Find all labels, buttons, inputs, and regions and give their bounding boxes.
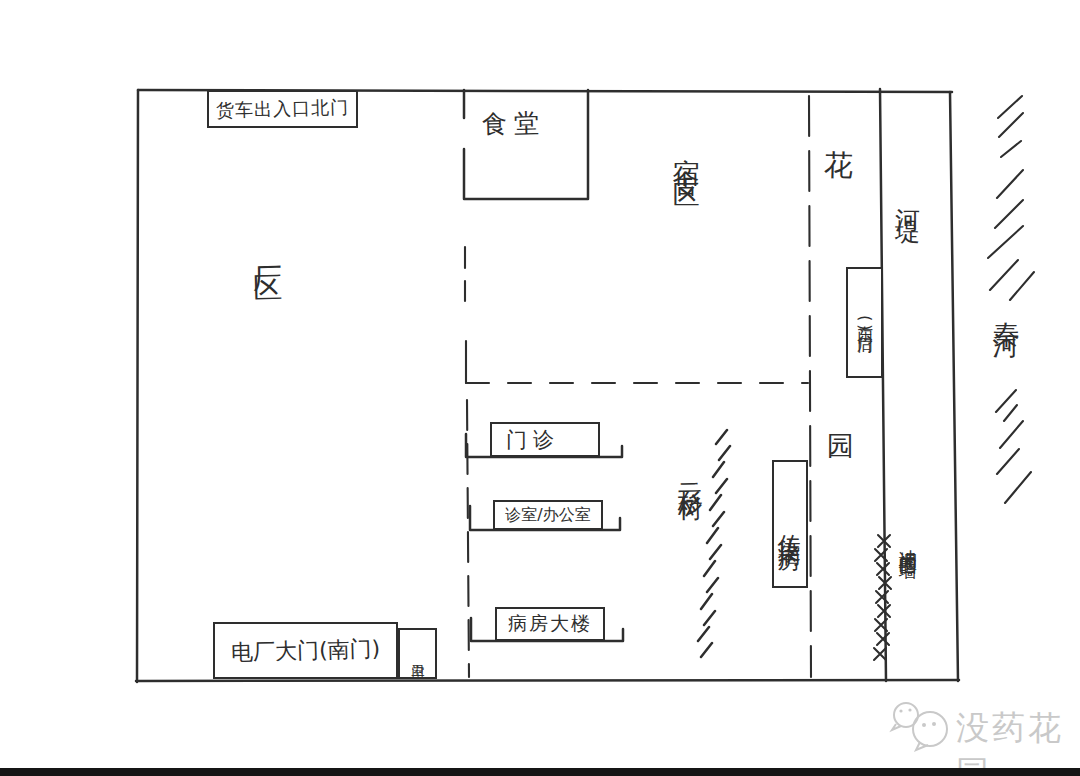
factory-area-label: 厂区 bbox=[250, 243, 284, 262]
factory-divider-dashes bbox=[465, 247, 466, 383]
canteen-box-outline bbox=[464, 90, 588, 199]
river-hatches-lower bbox=[996, 390, 1031, 503]
south-gate-label: 电厂大门(南门) bbox=[231, 634, 381, 668]
infectious-ward-label: 传染病房 bbox=[775, 516, 806, 532]
dormitory-area-label: 宿舍区 bbox=[671, 137, 702, 173]
river-embankment-label: 河堤 bbox=[892, 188, 921, 212]
clinic-office-box: 诊室/办公室 bbox=[493, 500, 603, 530]
infectious-ward-box: 传染病房 bbox=[772, 460, 808, 588]
east-gate-label: 东门(后门) bbox=[854, 313, 875, 331]
bottom-scan-bar bbox=[0, 768, 1080, 776]
collapsed-wall-x-marks bbox=[874, 535, 891, 660]
south-wall-line bbox=[136, 680, 959, 681]
ward-building-box: 病房大楼 bbox=[495, 607, 605, 641]
clinic-office-label: 诊室/办公室 bbox=[505, 505, 590, 526]
north-gate-label: 货车出入口北门 bbox=[216, 95, 350, 122]
outpatient-box: 门诊 bbox=[490, 422, 600, 457]
spruce-trees-label: 云杉树 bbox=[674, 464, 703, 483]
west-wall-line bbox=[137, 90, 138, 682]
garden-dashed-divider bbox=[809, 96, 811, 677]
outpatient-label: 门诊 bbox=[506, 426, 560, 454]
watermark-text: 没药花园 bbox=[956, 706, 1080, 776]
east-gate-box: 东门(后门) bbox=[846, 267, 883, 378]
river-embankment-outer-line bbox=[950, 92, 958, 681]
watermark: 没药花园 bbox=[880, 698, 1080, 758]
guard-room-box: 门卫室 bbox=[398, 628, 437, 679]
garden-label: 园 bbox=[827, 430, 854, 461]
wechat-bubbles-icon bbox=[880, 698, 956, 758]
canteen-label: 食堂 bbox=[482, 109, 547, 139]
east-wall-line bbox=[880, 89, 886, 681]
qin-river-label: 秦河 bbox=[991, 301, 1022, 321]
hand-drawn-site-map: 货车出入口北门 食堂 厂区 宿舍区 花 园 河堤 东门(后门) 秦河 门诊 诊室… bbox=[0, 0, 1080, 776]
ward-building-label: 病房大楼 bbox=[508, 611, 592, 637]
north-gate-box: 货车出入口北门 bbox=[207, 90, 358, 128]
collapsed-wall-label: 冲塌的围墙 bbox=[897, 535, 918, 550]
south-gate-box: 电厂大门(南门) bbox=[213, 622, 398, 679]
river-hatches-upper bbox=[988, 96, 1034, 300]
hospital-dashed-divider bbox=[467, 400, 469, 677]
flower-label: 花 bbox=[824, 149, 854, 183]
